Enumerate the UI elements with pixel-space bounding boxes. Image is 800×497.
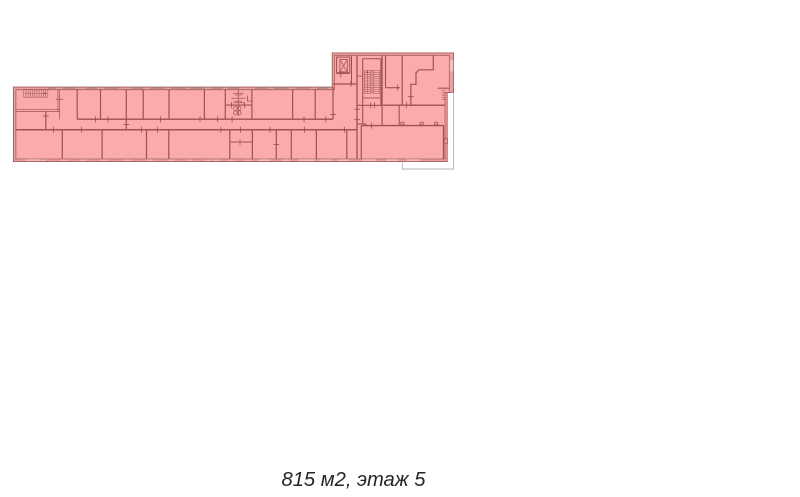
- svg-text:815 м2, этаж 5: 815 м2, этаж 5: [281, 469, 426, 491]
